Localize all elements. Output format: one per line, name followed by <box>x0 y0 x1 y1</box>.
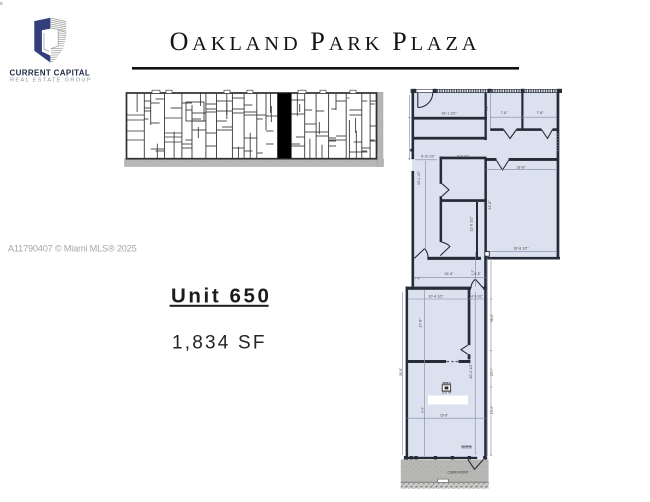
svg-text:9'-8": 9'-8" <box>420 407 424 413</box>
svg-text:15'-8": 15'-8" <box>440 413 448 417</box>
svg-text:18'-8 1/2": 18'-8 1/2" <box>513 246 529 250</box>
svg-text:5'-2": 5'-2" <box>485 105 489 111</box>
svg-text:8'-8": 8'-8" <box>474 272 480 276</box>
svg-text:ENTRANCE: ENTRANCE <box>460 446 473 449</box>
svg-text:Unit 650: Unit 650 <box>171 285 272 308</box>
svg-text:16'-1 1/2": 16'-1 1/2" <box>441 111 457 115</box>
svg-text:8'-10 1/2": 8'-10 1/2" <box>421 154 434 158</box>
svg-text:30'-1 1/2": 30'-1 1/2" <box>417 170 421 185</box>
svg-text:9'-8 1/2": 9'-8 1/2" <box>457 154 469 158</box>
svg-text:15'-8": 15'-8" <box>444 272 454 276</box>
svg-text:25'-7": 25'-7" <box>490 368 494 376</box>
svg-text:20'-2 1/2": 20'-2 1/2" <box>469 363 473 379</box>
svg-text:CURB FRONT: CURB FRONT <box>448 471 469 475</box>
svg-text:13'-4": 13'-4" <box>490 406 494 414</box>
svg-text:4'-9 1/2": 4'-9 1/2" <box>471 295 483 299</box>
svg-text:17'-8": 17'-8" <box>419 318 423 328</box>
svg-text:36'-8": 36'-8" <box>490 314 494 322</box>
svg-text:21'-8": 21'-8" <box>488 200 492 210</box>
svg-text:7'-8": 7'-8" <box>536 111 544 115</box>
svg-text:36'-8": 36'-8" <box>399 368 403 376</box>
svg-text:A11790407 © Miami MLS® 2025: A11790407 © Miami MLS® 2025 <box>8 244 137 254</box>
svg-text:10'-4 1/2": 10'-4 1/2" <box>428 295 444 299</box>
svg-text:1137 SF: 1137 SF <box>442 391 452 395</box>
svg-text:7'-8": 7'-8" <box>500 111 508 115</box>
svg-text:11'-6 1/2": 11'-6 1/2" <box>469 216 473 232</box>
svg-text:7'-4": 7'-4" <box>415 277 421 281</box>
svg-text:1,834 SF: 1,834 SF <box>172 333 267 354</box>
svg-text:18'-8": 18'-8" <box>516 165 526 169</box>
svg-text:CURRENT CAPITAL: CURRENT CAPITAL <box>10 69 91 78</box>
svg-text:REAL ESTATE GROUP: REAL ESTATE GROUP <box>10 78 92 84</box>
